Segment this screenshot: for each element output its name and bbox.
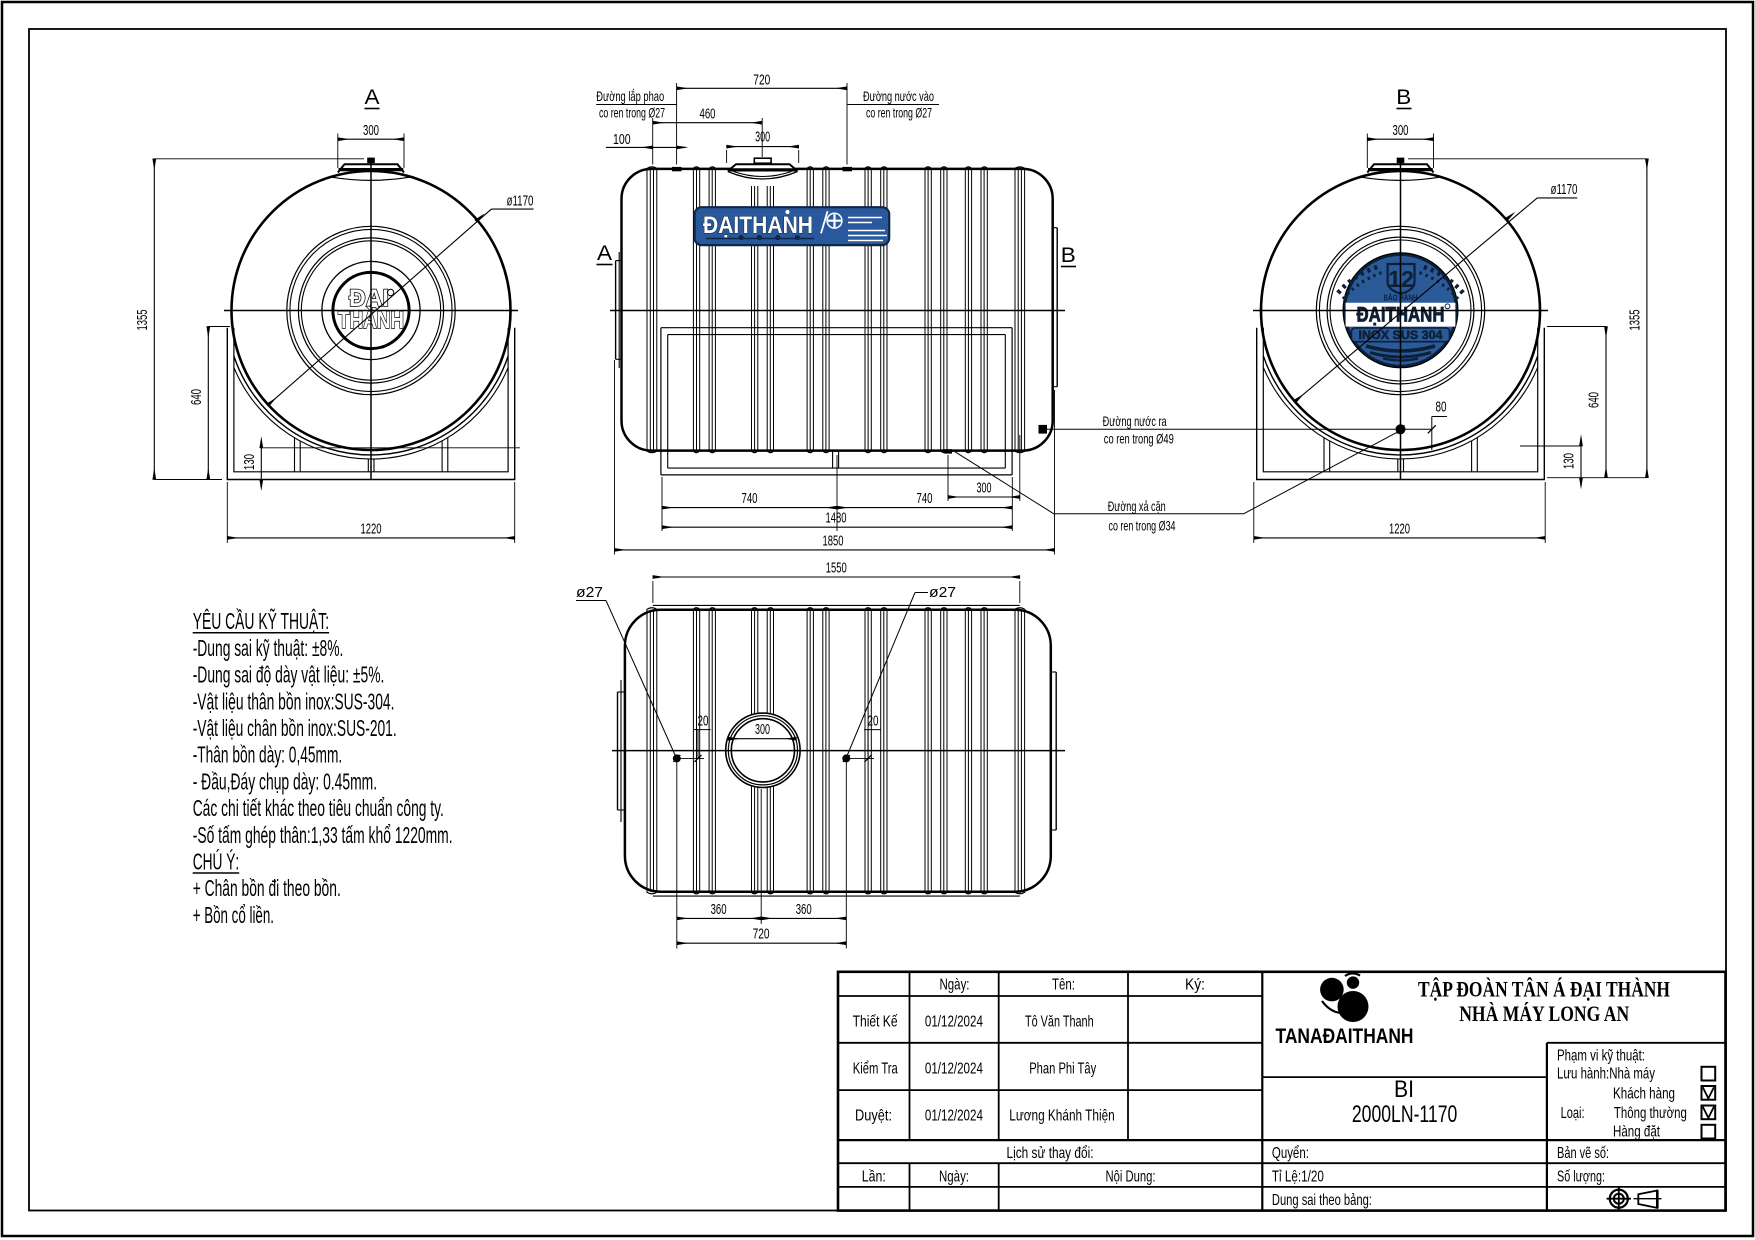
svg-text:640: 640 (1587, 392, 1603, 408)
svg-text:Tỉ Lệ:1/20: Tỉ Lệ:1/20 (1272, 1168, 1324, 1185)
svg-text:360: 360 (711, 902, 727, 918)
svg-text:01/12/2024: 01/12/2024 (925, 1014, 983, 1031)
svg-text:1550: 1550 (826, 561, 847, 577)
svg-text:2000LN-1170: 2000LN-1170 (1352, 1101, 1457, 1128)
svg-text:300: 300 (1393, 123, 1409, 139)
svg-text:Đường lắp phao: Đường lắp phao (596, 88, 664, 104)
svg-text:TẬP ĐOÀN TÂN Á ĐẠI THÀNH: TẬP ĐOÀN TÂN Á ĐẠI THÀNH (1418, 976, 1670, 1002)
svg-text:-Vật liệu thân bồn inox:SUS-30: -Vật liệu thân bồn inox:SUS-304. (193, 688, 395, 714)
svg-text:740: 740 (917, 491, 933, 507)
svg-text:-Dung sai kỹ thuật: ±8%.: -Dung sai kỹ thuật: ±8%. (193, 635, 344, 661)
svg-text:Đường nước vào: Đường nước vào (863, 88, 934, 104)
svg-text:360: 360 (796, 902, 812, 918)
svg-text:Tô Văn Thanh: Tô Văn Thanh (1025, 1014, 1094, 1031)
svg-text:1850: 1850 (823, 533, 844, 549)
svg-text:720: 720 (753, 72, 770, 88)
svg-text:Ngày:: Ngày: (939, 1168, 969, 1185)
svg-text:- Đầu,Đáy chụp dày: 0.45mm.: - Đầu,Đáy chụp dày: 0.45mm. (193, 768, 377, 794)
svg-text:Ký:: Ký: (1185, 977, 1205, 994)
svg-text:1480: 1480 (826, 511, 847, 527)
svg-text:Loại:: Loại: (1561, 1105, 1585, 1122)
svg-text:+ Chân bồn đi theo bồn.: + Chân bồn đi theo bồn. (193, 875, 341, 901)
svg-text:ø27: ø27 (929, 585, 956, 601)
svg-text:20: 20 (698, 713, 709, 729)
svg-text:NHÀ MÁY LONG AN: NHÀ MÁY LONG AN (1459, 1001, 1629, 1026)
svg-text:BI: BI (1394, 1076, 1414, 1103)
svg-text:ø27: ø27 (576, 585, 603, 601)
svg-text:Duyệt:: Duyệt: (855, 1108, 892, 1125)
svg-text:300: 300 (755, 722, 770, 738)
svg-text:Các chi tiết khác theo tiêu ch: Các chi tiết khác theo tiêu chuẩn công t… (193, 795, 444, 821)
svg-text:Lương Khánh Thiện: Lương Khánh Thiện (1009, 1108, 1115, 1125)
svg-text:ø1170: ø1170 (1551, 182, 1578, 198)
svg-text:80: 80 (1436, 400, 1447, 416)
svg-text:Thông thường: Thông thường (1614, 1105, 1687, 1122)
svg-text:-Vật liệu chân bồn inox:SUS-20: -Vật liệu chân bồn inox:SUS-201. (193, 715, 397, 741)
svg-text:Số lượng:: Số lượng: (1557, 1168, 1605, 1185)
svg-text:01/12/2024: 01/12/2024 (925, 1108, 983, 1125)
svg-text:1220: 1220 (1389, 522, 1410, 538)
svg-text:co ren trong Ø49: co ren trong Ø49 (1104, 431, 1174, 447)
svg-text:640: 640 (189, 389, 205, 405)
svg-text:Thiết Kế: Thiết Kế (853, 1014, 898, 1031)
svg-text:Nội Dung:: Nội Dung: (1106, 1168, 1156, 1185)
svg-text:Phạm vi kỹ thuật:: Phạm vi kỹ thuật: (1557, 1048, 1645, 1065)
svg-text:Hàng đặt: Hàng đặt (1613, 1124, 1660, 1141)
svg-text:co ren trong Ø27: co ren trong Ø27 (866, 105, 932, 121)
svg-text:co ren trong Ø34: co ren trong Ø34 (1109, 517, 1176, 533)
svg-text:-Dung sai độ dày vật liệu: ±5%: -Dung sai độ dày vật liệu: ±5%. (193, 662, 385, 688)
svg-text:300: 300 (363, 123, 379, 139)
svg-text:1355: 1355 (1627, 310, 1643, 331)
svg-text:Ngày:: Ngày: (940, 977, 970, 994)
svg-text:ø1170: ø1170 (507, 193, 534, 209)
svg-text:-Số tấm ghép thân:1,33 tấm khổ: -Số tấm ghép thân:1,33 tấm khổ 1220mm. (193, 822, 453, 848)
svg-text:CHÚ Ý:: CHÚ Ý: (193, 849, 240, 875)
svg-text:Bản vẽ số:: Bản vẽ số: (1557, 1145, 1609, 1162)
svg-text:740: 740 (742, 491, 758, 507)
svg-text:1220: 1220 (361, 522, 382, 538)
svg-text:B: B (1061, 244, 1076, 267)
svg-text:A: A (365, 86, 380, 109)
svg-text:Lưu hành:Nhà máy: Lưu hành:Nhà máy (1557, 1066, 1655, 1083)
svg-text:1355: 1355 (135, 310, 151, 331)
svg-text:Khách hàng: Khách hàng (1613, 1086, 1675, 1103)
svg-text:Kiểm Tra: Kiểm Tra (853, 1060, 898, 1078)
svg-text:01/12/2024: 01/12/2024 (925, 1061, 983, 1078)
svg-text:Tên:: Tên: (1052, 977, 1075, 994)
svg-text:100: 100 (613, 132, 631, 148)
svg-text:ĐẠITHANH: ĐẠITHANH (703, 212, 813, 239)
svg-text:130: 130 (1562, 453, 1578, 469)
svg-text:460: 460 (700, 107, 716, 123)
svg-text:300: 300 (977, 481, 992, 497)
svg-text:130: 130 (242, 454, 258, 470)
svg-text:Dung sai theo bảng:: Dung sai theo bảng: (1272, 1192, 1372, 1209)
svg-text:co ren trong Ø27: co ren trong Ø27 (599, 105, 665, 121)
svg-text:B: B (1396, 86, 1411, 109)
svg-text:Phan Phi Tây: Phan Phi Tây (1029, 1061, 1096, 1078)
svg-text:A: A (597, 242, 612, 265)
svg-text:-Thân bồn dày: 0,45mm.: -Thân bồn dày: 0,45mm. (193, 742, 343, 768)
svg-text:TANAĐAITHANH: TANAĐAITHANH (1276, 1024, 1414, 1048)
svg-text:300: 300 (755, 130, 770, 146)
svg-text:Lịch sử thay đổi:: Lịch sử thay đổi: (1007, 1144, 1094, 1162)
svg-text:20: 20 (868, 713, 879, 729)
svg-text:YÊU CẦU KỸ THUẬT:: YÊU CẦU KỸ THUẬT: (193, 607, 329, 634)
svg-text:Đường nước ra: Đường nước ra (1103, 413, 1167, 429)
svg-text:Lần:: Lần: (862, 1168, 886, 1185)
svg-text:Quyển:: Quyển: (1272, 1144, 1309, 1162)
svg-text:+ Bồn cổ liền.: + Bồn cổ liền. (193, 902, 274, 928)
svg-text:Đường xả cặn: Đường xả cặn (1108, 498, 1166, 514)
svg-text:720: 720 (753, 927, 770, 943)
